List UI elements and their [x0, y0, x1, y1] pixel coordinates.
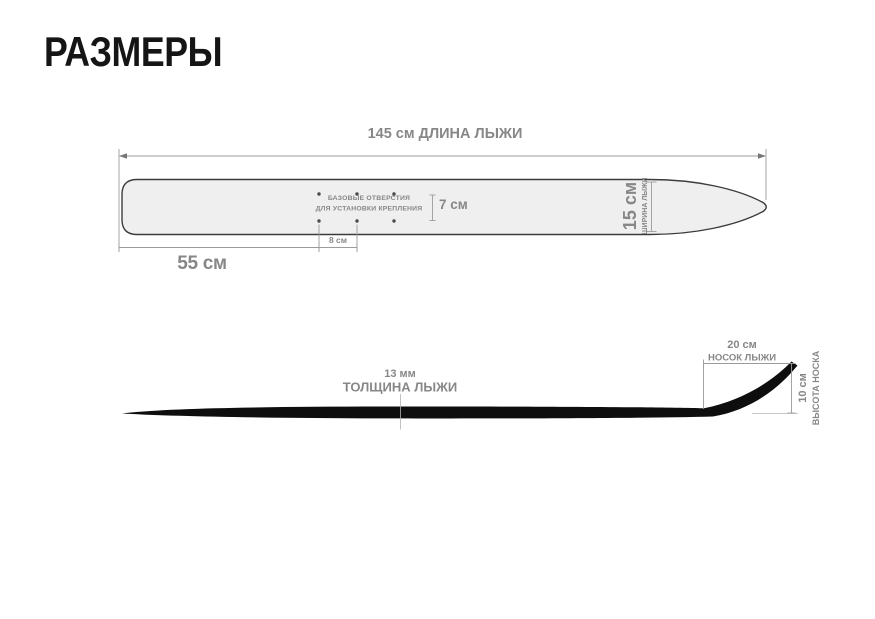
- holes-note-line1: БАЗОВЫЕ ОТВЕРСТИЯ: [328, 195, 410, 202]
- ski-dimensions-diagram: 145 см ДЛИНА ЛЫЖИ БАЗОВЫЕ ОТВЕРСТИЯ ДЛЯ …: [0, 0, 875, 619]
- ski-side-view-shape: [122, 362, 798, 419]
- width-dimension-label: ШИРИНА ЛЫЖИ: [642, 178, 649, 235]
- tip-height-label: ВЫСОТА НОСКА: [811, 350, 821, 425]
- length-dimension-label: 145 см ДЛИНА ЛЫЖИ: [368, 126, 523, 142]
- mounting-hole: [355, 219, 358, 222]
- ski-dimensions-page: РАЗМЕРЫ 145 см ДЛИНА ЛЫЖИ: [0, 0, 875, 619]
- thickness-label: ТОЛЩИНА ЛЫЖИ: [343, 380, 457, 395]
- tail-dimension-label: 55 см: [177, 253, 227, 274]
- tip-length-value-label: 20 см: [727, 339, 757, 351]
- arrow-left-icon: [119, 153, 127, 158]
- tip-height-value-label: 10 см: [797, 373, 809, 403]
- width-dimension-value: 15 см: [620, 182, 640, 230]
- ski-side-view-group: 13 мм ТОЛЩИНА ЛЫЖИ 20 см НОСОК ЛЫЖИ 10 с…: [122, 339, 821, 430]
- tip-length-label: НОСОК ЛЫЖИ: [708, 353, 776, 364]
- hole-gap-dimension-label: 7 см: [439, 197, 468, 212]
- holes-note-line2: ДЛЯ УСТАНОВКИ КРЕПЛЕНИЯ: [316, 206, 423, 213]
- arrow-right-icon: [758, 153, 766, 158]
- mounting-hole: [317, 219, 320, 222]
- ski-top-view-group: 145 см ДЛИНА ЛЫЖИ БАЗОВЫЕ ОТВЕРСТИЯ ДЛЯ …: [119, 126, 766, 274]
- thickness-value-label: 13 мм: [384, 368, 416, 380]
- mounting-hole: [392, 219, 395, 222]
- hole-spacing-label: 8 см: [329, 235, 347, 245]
- mounting-hole: [317, 192, 320, 195]
